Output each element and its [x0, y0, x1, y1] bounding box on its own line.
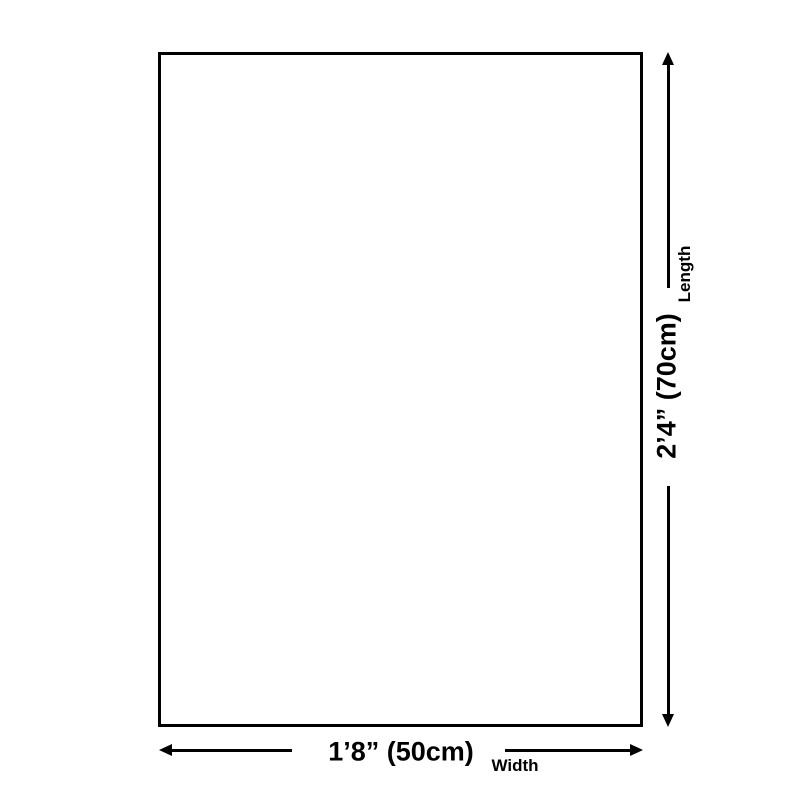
width-value: 1’8” (50cm) — [328, 737, 474, 768]
arrow-down-icon — [662, 714, 674, 727]
length-label: Length — [675, 246, 695, 303]
length-arrow-upper-line — [667, 63, 670, 288]
width-arrow-right-line — [505, 749, 632, 752]
dimension-diagram: 2’4” (70cm) Length 1’8” (50cm) Width — [0, 0, 800, 800]
width-label: Width — [491, 756, 538, 776]
length-value: 2’4” (70cm) — [652, 313, 683, 459]
product-outline-rectangle — [158, 52, 643, 727]
width-arrow-left-line — [170, 749, 292, 752]
length-arrow-lower-line — [667, 486, 670, 715]
arrow-right-icon — [630, 744, 643, 756]
